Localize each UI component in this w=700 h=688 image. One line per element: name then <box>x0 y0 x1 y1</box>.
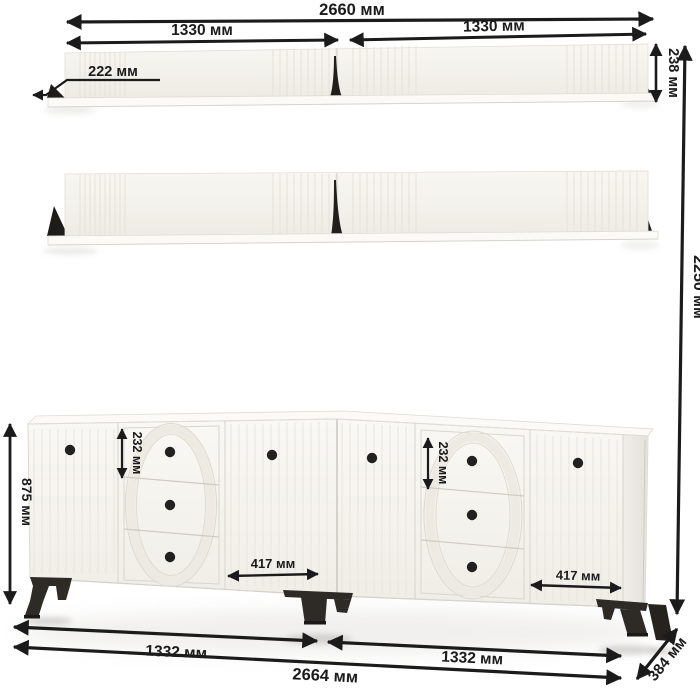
furniture-dimension-diagram: 2660 мм 1330 мм 1330 мм 222 мм 238 мм 22… <box>0 0 700 688</box>
door-knob-3 <box>367 453 377 463</box>
shelf-shadow <box>42 247 98 255</box>
dim-shelf-depth-label: 222 мм <box>88 64 138 80</box>
dim-top-half-right-label: 1330 мм <box>463 17 525 35</box>
shelf-face <box>65 171 648 238</box>
dim-bottom-half-left-label: 1332 мм <box>145 643 207 663</box>
dim-shelf-height-label: 238 мм <box>665 48 681 98</box>
dim-drawer-right-label: 232 мм <box>436 442 450 485</box>
dim-cabinet-height-label: 875 мм <box>19 478 35 526</box>
dim-bottom-half-right-label: 1332 мм <box>441 649 503 669</box>
drawer-knob <box>467 456 477 466</box>
drawer-knob <box>165 447 175 457</box>
diagram-canvas: 2660 мм 1330 мм 1330 мм 222 мм 238 мм 22… <box>0 0 700 688</box>
door-knob-4 <box>573 458 583 468</box>
shelf-shadow <box>620 241 660 249</box>
shelf-face <box>65 44 648 99</box>
wall-shelf-upper <box>47 44 658 107</box>
leg-shadow <box>598 645 658 655</box>
dim-top-total-label: 2660 мм <box>319 1 385 19</box>
drawer-knob <box>165 552 175 562</box>
dim-drawer-left-label: 232 мм <box>130 432 144 475</box>
dim-total-height-label: 2250 мм <box>690 255 700 319</box>
door-knob-1 <box>65 445 75 455</box>
door-knob-2 <box>267 450 277 460</box>
drawer-knob <box>467 562 477 572</box>
drawer-knob <box>165 500 175 510</box>
dim-door-left-label: 417 мм <box>251 556 296 571</box>
wall-shelf-lower <box>47 171 658 245</box>
dim-door-right-label: 417 мм <box>556 567 601 583</box>
drawer-knob <box>467 510 477 520</box>
dim-bottom-total-label: 2664 мм <box>292 665 359 686</box>
dim-top-half-left-label: 1330 мм <box>171 22 233 39</box>
